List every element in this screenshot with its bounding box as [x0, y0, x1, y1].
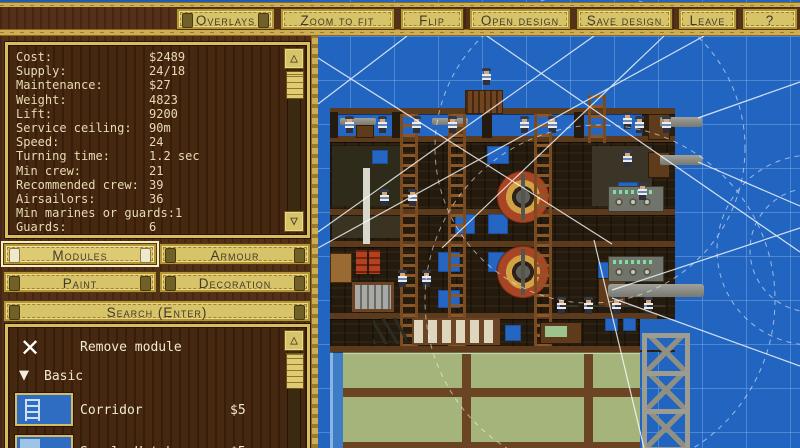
remove-module-label: Remove module — [80, 340, 182, 355]
stat-row: Weight:4823 — [16, 93, 279, 107]
stat-row: Maintenance:$27 — [16, 78, 279, 92]
deck-post — [574, 112, 584, 138]
stat-row: Cost:$2489 — [16, 50, 279, 64]
crew-sprite — [448, 116, 457, 133]
zoom-to-fit-label: Zoom to fit — [300, 13, 374, 28]
top-toolbar: Overlays Zoom to fit Flip Open design Sa… — [0, 2, 800, 36]
stat-row: Airsailors:36 — [16, 192, 279, 206]
tab-paint-label: Paint — [63, 276, 98, 291]
stats-scrollbar[interactable]: △ ▽ — [284, 48, 304, 232]
stat-label: Supply: — [16, 64, 149, 78]
pipe-icon — [363, 168, 370, 244]
module-item-price: $5 — [230, 403, 246, 418]
hull-opening — [487, 146, 509, 164]
crew-sprite — [378, 116, 387, 133]
hull-opening — [623, 318, 636, 331]
leave-label: Leave — [690, 13, 726, 28]
stat-label: Service ceiling: — [16, 121, 149, 135]
tab-armour-label: Armour — [210, 248, 259, 263]
bunks-icon — [412, 318, 500, 345]
crew-sprite — [557, 297, 566, 314]
module-item-supply-hatch[interactable]: Supply Hatch$5 — [8, 435, 307, 448]
open-design-label: Open design — [481, 13, 559, 28]
stats-scroll-down-button[interactable]: ▽ — [284, 211, 304, 232]
crew-sprite — [412, 116, 421, 133]
stats-scroll-thumb[interactable] — [286, 71, 304, 99]
flip-label: Flip — [419, 13, 445, 28]
cannon-icon — [660, 155, 702, 165]
stat-value: 39 — [149, 178, 163, 192]
stat-row: Min crew:21 — [16, 164, 279, 178]
tab-decoration-label: Decoration — [199, 276, 272, 291]
stat-row: Service ceiling:90m — [16, 121, 279, 135]
save-design-button[interactable]: Save design — [577, 9, 672, 29]
zoom-to-fit-button[interactable]: Zoom to fit — [281, 9, 394, 29]
crew-sprite — [380, 189, 389, 206]
overlays-button[interactable]: Overlays — [177, 9, 274, 29]
remove-module-item[interactable]: ✕ Remove module — [8, 333, 307, 361]
deck-post — [482, 112, 492, 138]
module-scrollbar[interactable]: △ — [284, 330, 304, 448]
hull-opening — [372, 150, 388, 164]
module-scroll-up-button[interactable]: △ — [284, 330, 304, 351]
sidebar: Cost:$2489Supply:24/18Maintenance:$27Wei… — [0, 36, 318, 448]
stat-label: Turning time: — [16, 149, 149, 163]
stat-row: Lift:9200 — [16, 107, 279, 121]
stat-row: Speed:24 — [16, 135, 279, 149]
stat-value: 90m — [149, 121, 171, 135]
lookout-hatch-icon — [465, 90, 503, 114]
stat-row: Guards:6 — [16, 220, 279, 234]
crew-sprite — [398, 270, 407, 287]
barrel-icon — [356, 250, 367, 274]
flip-button[interactable]: Flip — [401, 9, 463, 29]
stat-label: Lift: — [16, 107, 149, 121]
control-panel-icon — [608, 186, 664, 212]
control-panel-icon — [608, 256, 664, 282]
crew-sprite — [548, 116, 557, 133]
stat-label: Guards: — [16, 220, 149, 234]
stat-value: 36 — [149, 192, 163, 206]
crew-sprite — [644, 297, 653, 314]
tab-modules[interactable]: Modules — [4, 244, 156, 264]
stat-row: Supply:24/18 — [16, 64, 279, 78]
stat-value: 9200 — [149, 107, 178, 121]
stat-value: 4823 — [149, 93, 178, 107]
crew-sprite — [623, 150, 632, 167]
stats-scroll-up-button[interactable]: △ — [284, 48, 304, 69]
stat-label: Recommended crew: — [16, 178, 149, 192]
crew-sprite — [662, 116, 671, 133]
crate-icon — [330, 253, 352, 283]
stat-label: Weight: — [16, 93, 149, 107]
ballast-tank — [330, 352, 343, 448]
stat-value: $27 — [149, 78, 171, 92]
rifle-rack-icon — [373, 318, 407, 344]
module-list-panel: ✕ Remove module ▼ Basic Corridor$5Supply… — [5, 324, 310, 448]
stat-row: Min marines or guards:1 — [16, 206, 279, 220]
stat-row: Recommended crew:39 — [16, 178, 279, 192]
help-label: ? — [766, 13, 775, 28]
supply-hatch-icon — [15, 435, 73, 448]
search-button-label: Search (Enter) — [107, 305, 208, 320]
tab-paint[interactable]: Paint — [4, 272, 156, 292]
crew-sprite — [345, 116, 354, 133]
leave-button[interactable]: Leave — [679, 9, 736, 29]
sidebar-gold-edge — [311, 36, 318, 448]
crew-sprite — [638, 183, 647, 200]
deck-post — [330, 112, 338, 138]
crew-sprite — [520, 116, 529, 133]
group-basic-label: Basic — [44, 369, 83, 384]
stat-label: Speed: — [16, 135, 149, 149]
stat-value: $2489 — [149, 50, 185, 64]
stat-label: Min marines or guards: — [16, 206, 175, 220]
corridor-ladder-icon — [15, 393, 73, 426]
hull-opening — [505, 325, 521, 341]
supply-shelf-icon — [352, 282, 394, 312]
tab-armour[interactable]: Armour — [160, 244, 310, 264]
heavy-cannon-icon — [608, 284, 704, 297]
crew-sprite — [623, 112, 632, 129]
crew-sprite — [422, 270, 431, 287]
crew-sprite — [408, 189, 417, 206]
help-button[interactable]: ? — [743, 9, 797, 29]
module-item-label: Corridor — [80, 403, 143, 418]
tail-truss — [642, 333, 690, 448]
stat-value: 24/18 — [149, 64, 185, 78]
tab-modules-label: Modules — [52, 248, 107, 263]
stats-panel: Cost:$2489Supply:24/18Maintenance:$27Wei… — [5, 42, 310, 238]
stat-value: 1 — [175, 206, 182, 220]
stat-value: 24 — [149, 135, 163, 149]
crew-sprite — [635, 116, 644, 133]
crew-sprite — [612, 297, 621, 314]
module-scroll-thumb[interactable] — [286, 353, 304, 389]
module-item-corridor[interactable]: Corridor$5 — [8, 393, 307, 429]
save-design-label: Save design — [587, 13, 663, 28]
remove-module-icon: ✕ — [18, 336, 42, 360]
airship-designer-window: Overlays Zoom to fit Flip Open design Sa… — [0, 0, 800, 448]
stat-label: Airsailors: — [16, 192, 149, 206]
design-canvas[interactable] — [312, 0, 800, 448]
stat-value: 21 — [149, 164, 163, 178]
crew-sprite — [482, 68, 491, 85]
stat-value: 6 — [149, 220, 156, 234]
crew-sprite — [584, 297, 593, 314]
stat-label: Min crew: — [16, 164, 149, 178]
gas-envelope — [330, 350, 640, 448]
search-button[interactable]: Search (Enter) — [4, 301, 310, 321]
chevron-down-icon: ▼ — [19, 368, 29, 383]
open-design-button[interactable]: Open design — [470, 9, 570, 29]
barrel-icon — [369, 250, 380, 274]
overlays-button-label: Overlays — [196, 13, 255, 28]
stat-row: Turning time:1.2 sec — [16, 149, 279, 163]
stat-value: 1.2 sec — [149, 149, 200, 163]
stat-label: Maintenance: — [16, 78, 149, 92]
tab-decoration[interactable]: Decoration — [160, 272, 310, 292]
stat-label: Cost: — [16, 50, 149, 64]
hull-opening — [605, 318, 618, 331]
map-desk-icon — [540, 322, 582, 344]
group-basic-header[interactable]: ▼ Basic — [8, 367, 307, 387]
